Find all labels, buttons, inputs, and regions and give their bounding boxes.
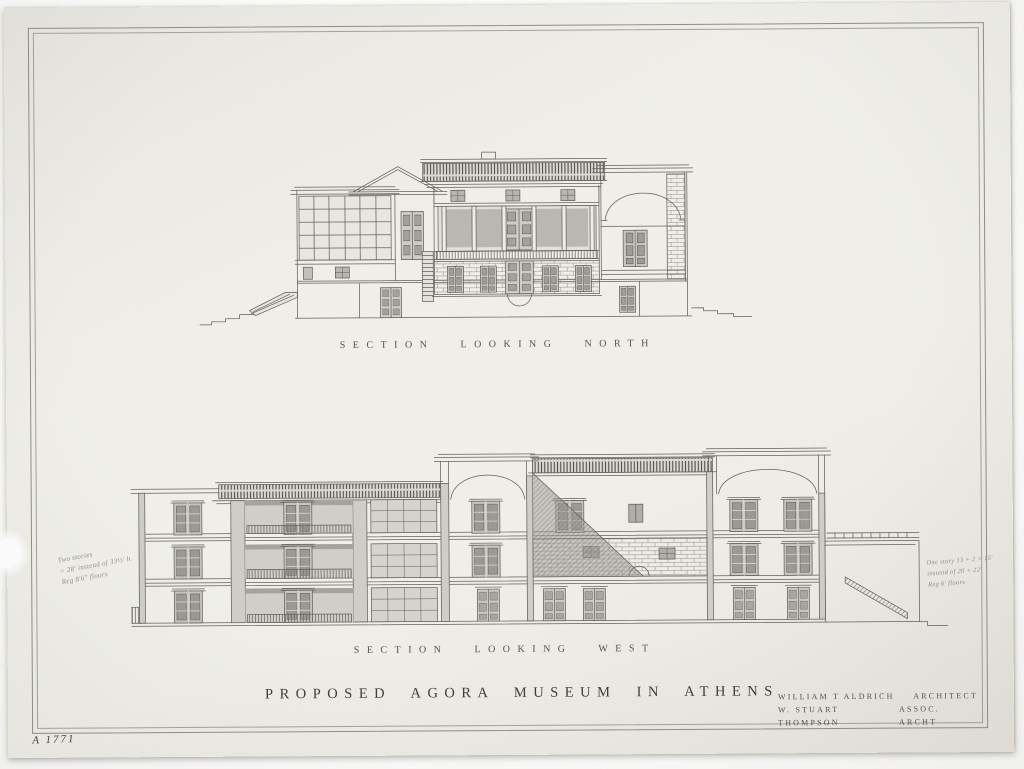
north-roof [421,151,607,187]
west-glazed-bays [371,499,438,621]
credits-block: WILLIAM T ALDRICH ARCHITECT W. STUART TH… [778,689,978,729]
ramp-hatch [845,577,907,619]
west-left-end-bay [171,501,206,623]
west-right-pavilion-openings [727,497,816,620]
architect-role: ARCHITECT [913,689,978,702]
north-clerestory [434,186,599,203]
paper-chip-spot [0,538,21,568]
apse-arc [432,293,601,306]
pencil-note-right: One story 13 + 2 = 15' instead of 20 + 2… [926,551,1018,591]
west-terrace [825,532,920,622]
section-north-drawing [199,137,760,345]
north-right-pavilion [593,165,694,282]
catalog-number: A 1771 [32,733,76,747]
north-left-wing-glazing [291,187,400,280]
north-left-stairs [199,292,297,325]
photograph-of-drawing: SECTION LOOKING NORTH SECTION LOOKING WE… [0,0,1024,769]
west-loggia-bays [245,500,354,623]
associate-role: ASSOC. ARCHT [899,702,978,728]
west-roofs [130,454,716,505]
architect-name: WILLIAM T ALDRICH [778,690,895,704]
north-right-terrain [692,308,752,317]
west-left-pavilion-openings [469,499,504,621]
section-west-drawing [130,444,951,639]
paper-sheet: SECTION LOOKING NORTH SECTION LOOKING WE… [4,2,1015,758]
associate-name: W. STUART THOMPSON [778,703,899,730]
credit-associate: W. STUART THOMPSON ASSOC. ARCHT [778,702,978,729]
west-shadow-wedge [533,472,644,577]
west-left-pavilion [434,454,538,500]
north-loggia [434,202,599,259]
west-right-pavilion [702,448,831,623]
north-stair-bay [395,193,434,301]
credit-architect: WILLIAM T ALDRICH ARCHITECT [778,689,978,703]
